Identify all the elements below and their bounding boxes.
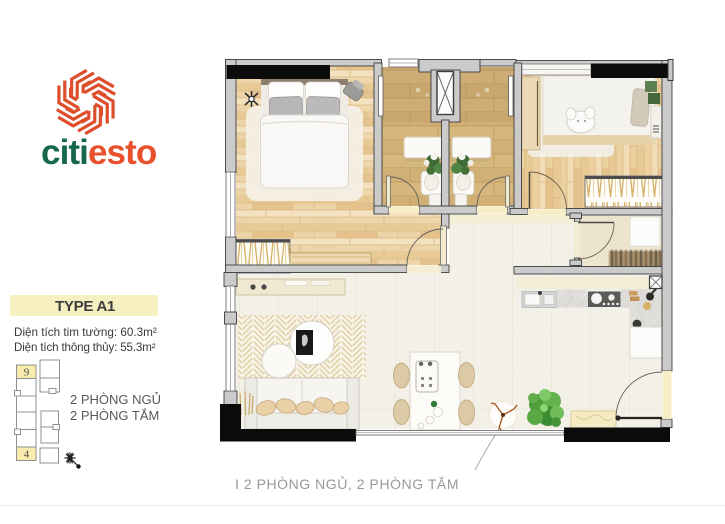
svg-text:I 2 PHÒNG NGỦ, 2 PHÒNG TẮM: I 2 PHÒNG NGỦ, 2 PHÒNG TẮM	[235, 475, 459, 492]
svg-text:2 PHÒNG TẮM: 2 PHÒNG TẮM	[70, 408, 159, 423]
svg-text:TYPE A1: TYPE A1	[55, 298, 116, 315]
svg-text:9: 9	[24, 367, 30, 379]
svg-text:Diện tích tim tường: 60.3m²: Diện tích tim tường: 60.3m²	[14, 326, 157, 339]
svg-text:citiesto: citiesto	[41, 133, 157, 172]
svg-text:4: 4	[24, 449, 30, 461]
svg-text:Diện tích thông thủy: 55.3m²: Diện tích thông thủy: 55.3m²	[14, 341, 156, 354]
svg-text:2 PHÒNG NGỦ: 2 PHÒNG NGỦ	[70, 392, 161, 407]
